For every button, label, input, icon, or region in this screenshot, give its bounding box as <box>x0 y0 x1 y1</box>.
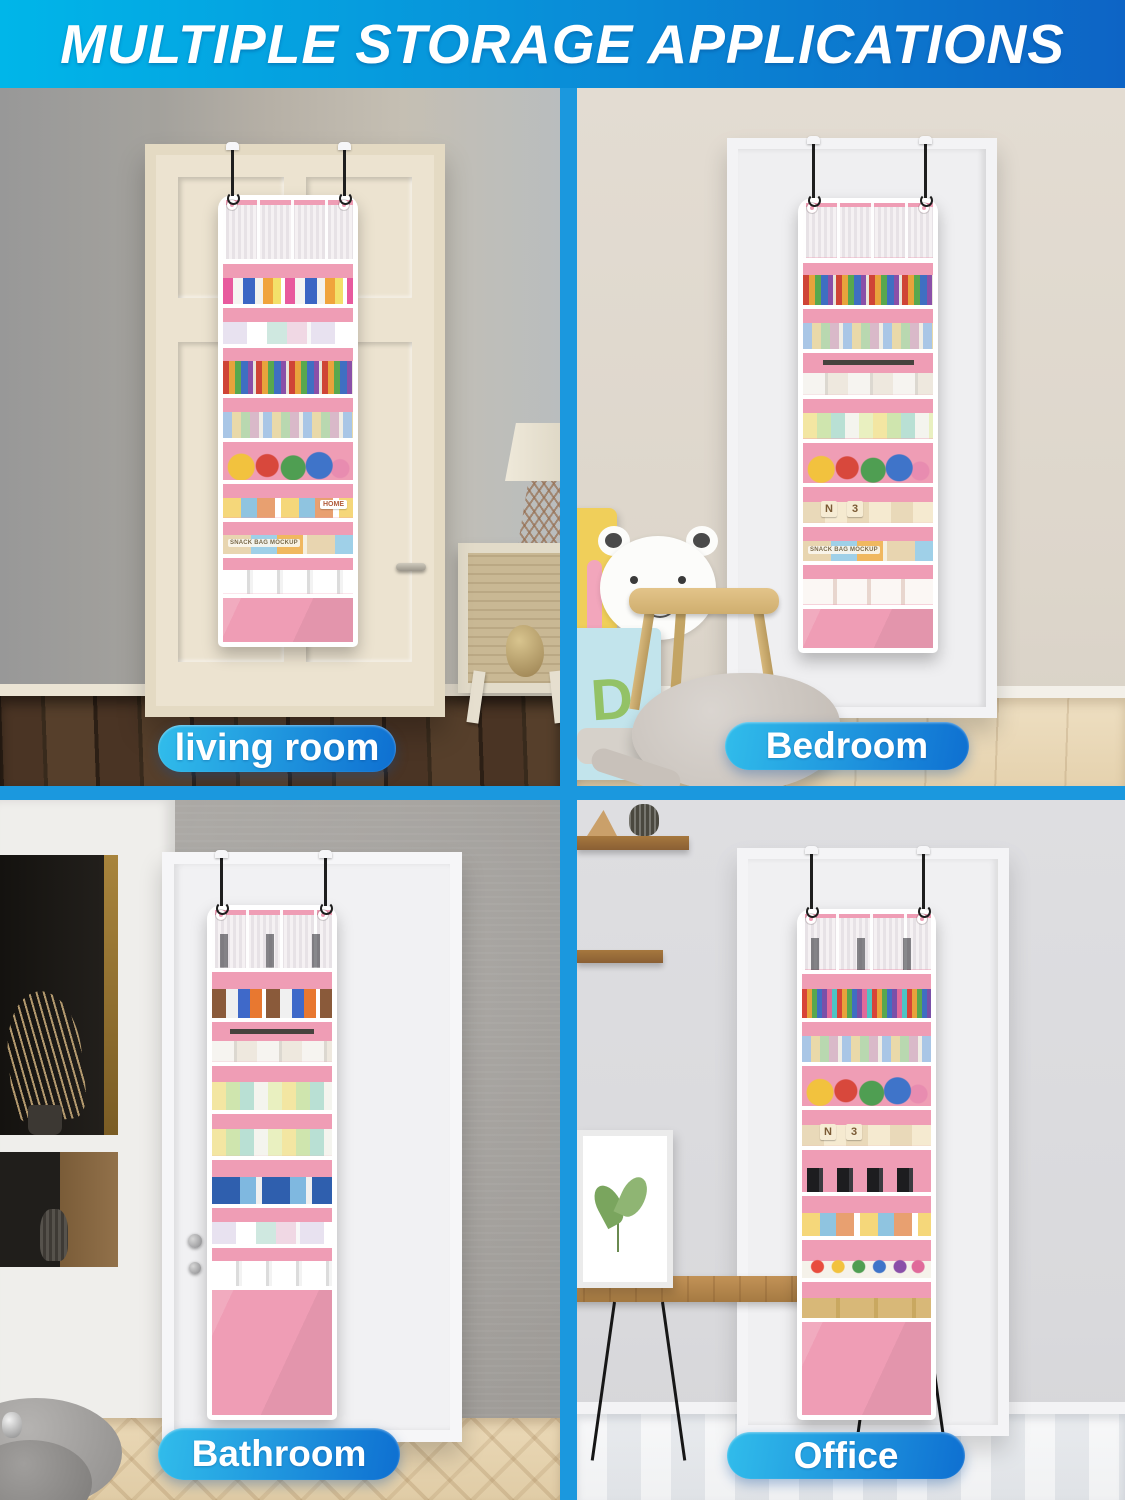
decor-object <box>506 625 544 677</box>
organizer-pocket-supplies <box>803 399 933 443</box>
organizer-pocket-alphabet-blocks: N 3 <box>803 487 933 527</box>
lamp-wire-base <box>516 481 560 543</box>
organizer-pocket-paper-rolls <box>223 558 353 598</box>
organizer-pocket-markers <box>802 974 931 1022</box>
room-label-bedroom: Bedroom <box>725 722 969 770</box>
organizer-bottom-pocket <box>803 609 933 648</box>
vase <box>629 804 659 836</box>
page-title: MULTIPLE STORAGE APPLICATIONS <box>60 12 1065 76</box>
organizer-pocket-toys <box>802 1066 931 1110</box>
vase <box>40 1209 68 1261</box>
over-door-organizer: HOME SNACK BAG MOCKUP <box>218 195 358 647</box>
door-hook-icon <box>220 854 223 906</box>
dried-plant <box>1 987 88 1124</box>
organizer-pocket-toys <box>223 442 353 484</box>
door-hook-icon <box>812 140 815 198</box>
organizer-pocket-toy-truck: HOME <box>223 484 353 522</box>
door-knob <box>188 1234 202 1248</box>
quadrant-office: N 3 Office <box>577 800 1125 1500</box>
room-label-living-room: living room <box>158 725 396 772</box>
room-label-office: Office <box>727 1432 965 1479</box>
door-lock <box>189 1262 201 1274</box>
organizer-pocket-stationery <box>802 1196 931 1240</box>
stool-seat <box>629 588 779 614</box>
header-banner: MULTIPLE STORAGE APPLICATIONS <box>0 0 1125 88</box>
package-label: SNACK BAG MOCKUP <box>808 546 880 554</box>
organizer-pocket-books-pastel <box>223 398 353 442</box>
door-hook-icon <box>924 140 927 198</box>
organizer-pocket-folders <box>802 1282 931 1322</box>
organizer-pocket-towels <box>212 1114 332 1160</box>
organizer-pocket-snack-bags: SNACK BAG MOCKUP <box>803 527 933 565</box>
package-label: HOME <box>320 500 347 509</box>
quadrant-living-room: HOME SNACK BAG MOCKUP living room <box>0 88 560 786</box>
organizer-pocket-detergent <box>212 1160 332 1208</box>
organizer-pocket-towels <box>212 1066 332 1114</box>
organizer-pocket-alphabet-blocks: N 3 <box>802 1110 931 1150</box>
organizer-pocket-flashlights <box>802 1150 931 1196</box>
organizer-pocket-toiletries <box>223 264 353 308</box>
decor-object <box>2 1412 22 1438</box>
plant-pot <box>28 1105 62 1135</box>
bear-eye <box>630 576 638 584</box>
organizer-pocket-jars <box>212 1022 332 1066</box>
organizer-pocket-books <box>803 263 933 309</box>
over-door-organizer: N 3 <box>797 909 936 1420</box>
organizer-pocket-dispensers <box>212 972 332 1022</box>
wall-niche <box>0 1152 118 1267</box>
living-room-wall <box>0 88 150 696</box>
organizer-pocket-soaps <box>223 308 353 348</box>
door-hook-icon <box>324 854 327 906</box>
quadrant-bedroom: D N 3 SNACK BAG MOCKUP <box>577 88 1125 786</box>
organizer-pocket-soaps <box>212 1208 332 1248</box>
organizer-pocket-snack-bags: SNACK BAG MOCKUP <box>223 522 353 558</box>
stool-leg <box>629 610 655 710</box>
brass-trim <box>104 855 118 1135</box>
bathroom-wall-unit <box>0 800 175 1500</box>
organizer-pocket-paint-set <box>802 1240 931 1282</box>
door-hook-icon <box>810 850 813 909</box>
package-label: SNACK BAG MOCKUP <box>228 539 300 547</box>
door-hook-icon <box>231 146 234 196</box>
product-image: MULTIPLE STORAGE APPLICATIONS <box>0 0 1125 1500</box>
alphabet-block: 3 <box>846 1124 862 1140</box>
organizer-bottom-pocket <box>223 598 353 642</box>
quadrant-bathroom: Bathroom <box>0 800 560 1500</box>
alphabet-block: 3 <box>847 501 863 517</box>
organizer-mesh-pocket-brushes <box>212 910 332 972</box>
wall-shelf <box>577 950 663 963</box>
organizer-pocket-jars <box>803 353 933 399</box>
bear-eye <box>678 576 686 584</box>
wall-shelf <box>577 836 689 850</box>
organizer-pocket-books <box>223 348 353 398</box>
door-handle <box>396 563 426 571</box>
plant-art-frame <box>577 1130 673 1288</box>
over-door-organizer: N 3 SNACK BAG MOCKUP <box>798 198 938 653</box>
organizer-bottom-pocket <box>802 1322 931 1415</box>
over-door-organizer <box>207 905 337 1420</box>
organizer-pocket-diapers <box>803 565 933 609</box>
organizer-pocket-toys <box>803 443 933 487</box>
wall-niche <box>0 855 118 1135</box>
alphabet-block: N <box>820 1124 836 1140</box>
leaf <box>613 1173 652 1221</box>
lamp-shade <box>505 423 560 481</box>
wood-backing <box>60 1152 118 1267</box>
organizer-mesh-pocket <box>223 200 353 264</box>
photo-grid: HOME SNACK BAG MOCKUP living room <box>0 88 1125 1500</box>
decor-object <box>587 810 617 836</box>
room-label-bathroom: Bathroom <box>158 1428 400 1480</box>
organizer-pocket-books-pastel <box>803 309 933 353</box>
organizer-mesh-pocket <box>803 203 933 263</box>
horizontal-divider <box>0 786 1125 800</box>
door-hook-icon <box>343 146 346 196</box>
organizer-bottom-pocket <box>212 1290 332 1415</box>
door-hook-icon <box>922 850 925 909</box>
alphabet-block: N <box>821 501 837 517</box>
organizer-pocket-pencils <box>802 1022 931 1066</box>
organizer-pocket-paper-rolls <box>212 1248 332 1290</box>
organizer-mesh-pocket-tools <box>802 914 931 974</box>
